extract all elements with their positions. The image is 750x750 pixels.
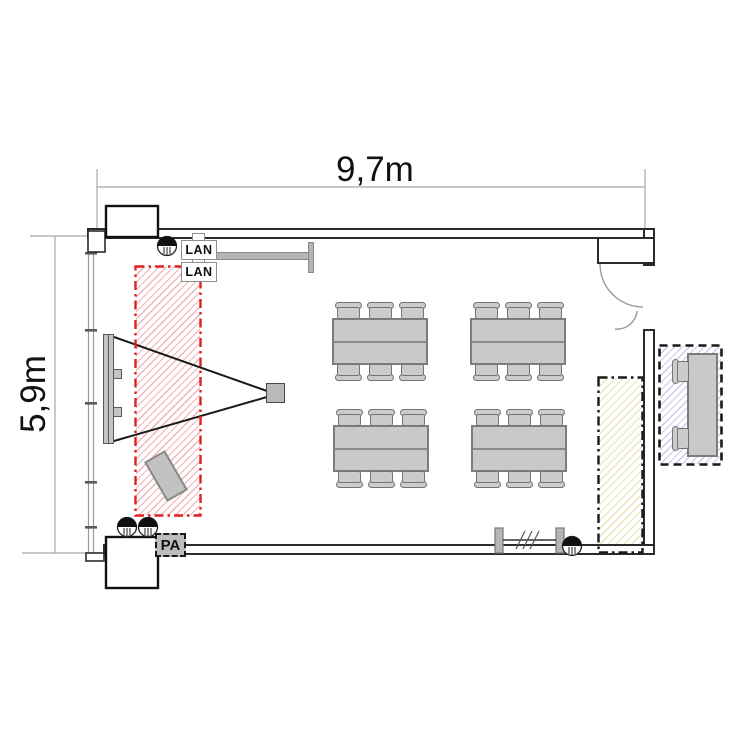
wall-whiteboard-endcap	[308, 242, 314, 273]
column-top-left	[106, 206, 158, 237]
chair	[537, 364, 564, 381]
chair	[506, 409, 533, 426]
chair-seat	[402, 414, 425, 426]
chair	[505, 302, 532, 319]
chair	[473, 302, 500, 319]
chair	[505, 364, 532, 381]
seminar-table	[470, 318, 566, 365]
chair-seat	[370, 471, 393, 483]
seminar-table	[333, 425, 429, 472]
chair	[368, 471, 395, 488]
external-desk	[687, 353, 718, 457]
chair	[537, 302, 564, 319]
chair	[399, 302, 426, 319]
wall-strip-zone-border	[599, 378, 643, 553]
chair	[672, 359, 689, 384]
chair	[367, 302, 394, 319]
chair-seat	[476, 471, 499, 483]
screen-bracket	[113, 369, 122, 379]
table-divider	[472, 341, 564, 343]
chair	[335, 364, 362, 381]
chair	[538, 471, 565, 488]
chair	[672, 426, 689, 451]
wall-whiteboard	[216, 252, 310, 260]
chair-seat	[338, 414, 361, 426]
chair	[474, 471, 501, 488]
chair	[474, 409, 501, 426]
chair-seat	[475, 364, 498, 376]
screen-bracket	[113, 407, 122, 417]
chair	[335, 302, 362, 319]
projection-cone	[114, 337, 267, 441]
chair-seat	[677, 361, 689, 382]
chair-seat	[507, 307, 530, 319]
chair-seat	[338, 471, 361, 483]
chair-seat	[508, 471, 531, 483]
chair-seat	[369, 307, 392, 319]
seminar-table	[332, 318, 428, 365]
outlet-icon	[118, 518, 137, 537]
chair-seat	[337, 364, 360, 376]
chair	[400, 409, 427, 426]
chair-seat	[337, 307, 360, 319]
chair	[506, 471, 533, 488]
chair	[336, 471, 363, 488]
chair	[400, 471, 427, 488]
floor-plan: LAN LAN PA 9,7m 5,9m	[0, 0, 750, 750]
door-swing	[600, 264, 643, 329]
outlet-icon	[563, 537, 582, 556]
chair-seat	[369, 364, 392, 376]
chair-seat	[508, 414, 531, 426]
table-divider	[334, 341, 426, 343]
chair	[399, 364, 426, 381]
window-mullion-ticks	[85, 252, 97, 529]
chair	[367, 364, 394, 381]
chair-seat	[401, 364, 424, 376]
chair-seat	[540, 414, 563, 426]
chair	[538, 409, 565, 426]
walls	[86, 229, 654, 561]
chair-seat	[401, 307, 424, 319]
chair-seat	[475, 307, 498, 319]
outlet-icon	[158, 237, 177, 256]
chair-seat	[476, 414, 499, 426]
chair-seat	[540, 471, 563, 483]
table-divider	[335, 448, 427, 450]
chair-seat	[370, 414, 393, 426]
column-bottom-left	[106, 537, 158, 588]
floor-outlet-symbols	[118, 237, 582, 556]
chair	[473, 364, 500, 381]
chair-seat	[539, 307, 562, 319]
chair-seat	[402, 471, 425, 483]
lan-outlet-label-1: LAN	[181, 240, 217, 260]
projection-screen-rail	[108, 334, 114, 444]
chair-seat	[507, 364, 530, 376]
lan-outlet-label-2: LAN	[181, 262, 217, 282]
pa-outlet-label: PA	[155, 533, 186, 557]
window-wall	[89, 237, 94, 553]
chair-seat	[677, 428, 689, 449]
chair	[368, 409, 395, 426]
dimension-height-label: 5,9m	[14, 344, 54, 444]
chair-seat	[539, 364, 562, 376]
chair	[336, 409, 363, 426]
seminar-table	[471, 425, 567, 472]
projector	[266, 383, 285, 403]
table-divider	[473, 448, 565, 450]
dimension-width-label: 9,7m	[336, 150, 414, 190]
